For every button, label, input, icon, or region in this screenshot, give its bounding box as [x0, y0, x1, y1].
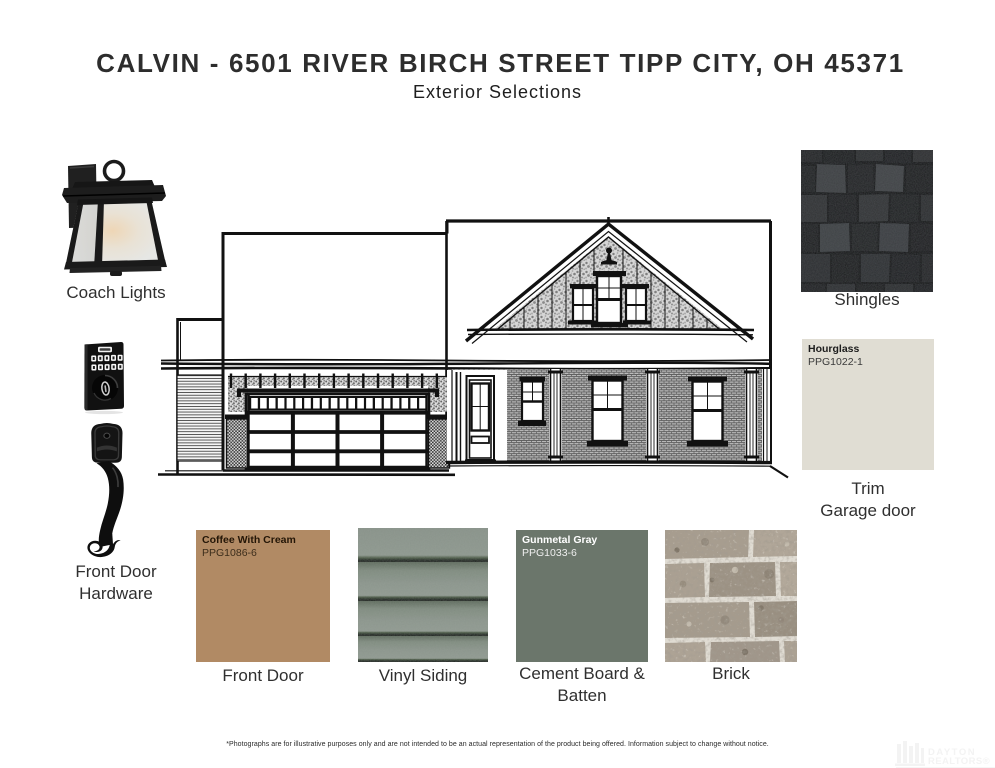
svg-text:REALTORS®: REALTORS®	[928, 756, 990, 767]
